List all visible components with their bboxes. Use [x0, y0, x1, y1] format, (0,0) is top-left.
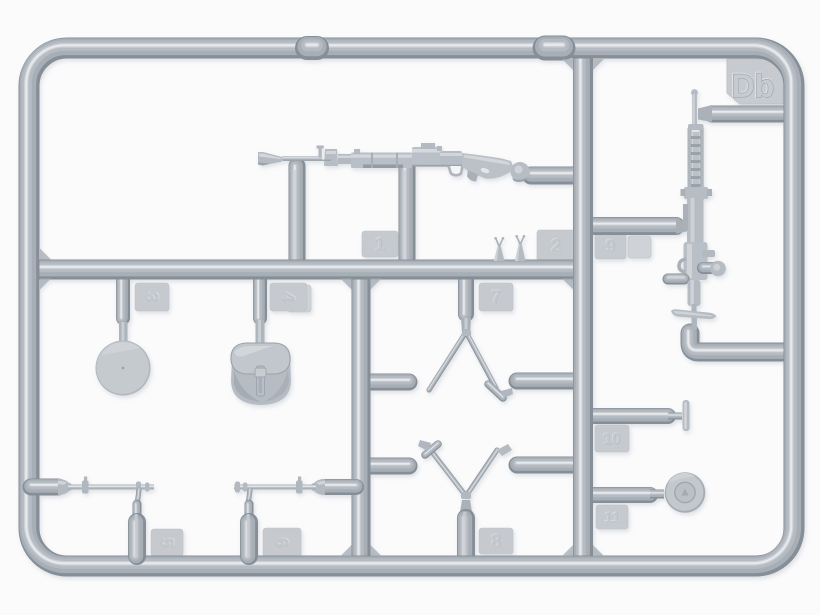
svg-text:11: 11 [604, 509, 620, 526]
svg-text:7: 7 [491, 287, 501, 307]
svg-text:2: 2 [551, 236, 561, 256]
svg-text:8: 8 [491, 531, 501, 551]
svg-text:9: 9 [605, 236, 615, 256]
svg-text:6: 6 [272, 537, 292, 547]
svg-text:1: 1 [375, 234, 385, 254]
svg-text:Db: Db [732, 68, 775, 104]
svg-text:4: 4 [278, 292, 298, 302]
svg-text:3: 3 [142, 292, 162, 302]
svg-text:5: 5 [157, 537, 177, 547]
svg-text:10: 10 [603, 431, 621, 448]
